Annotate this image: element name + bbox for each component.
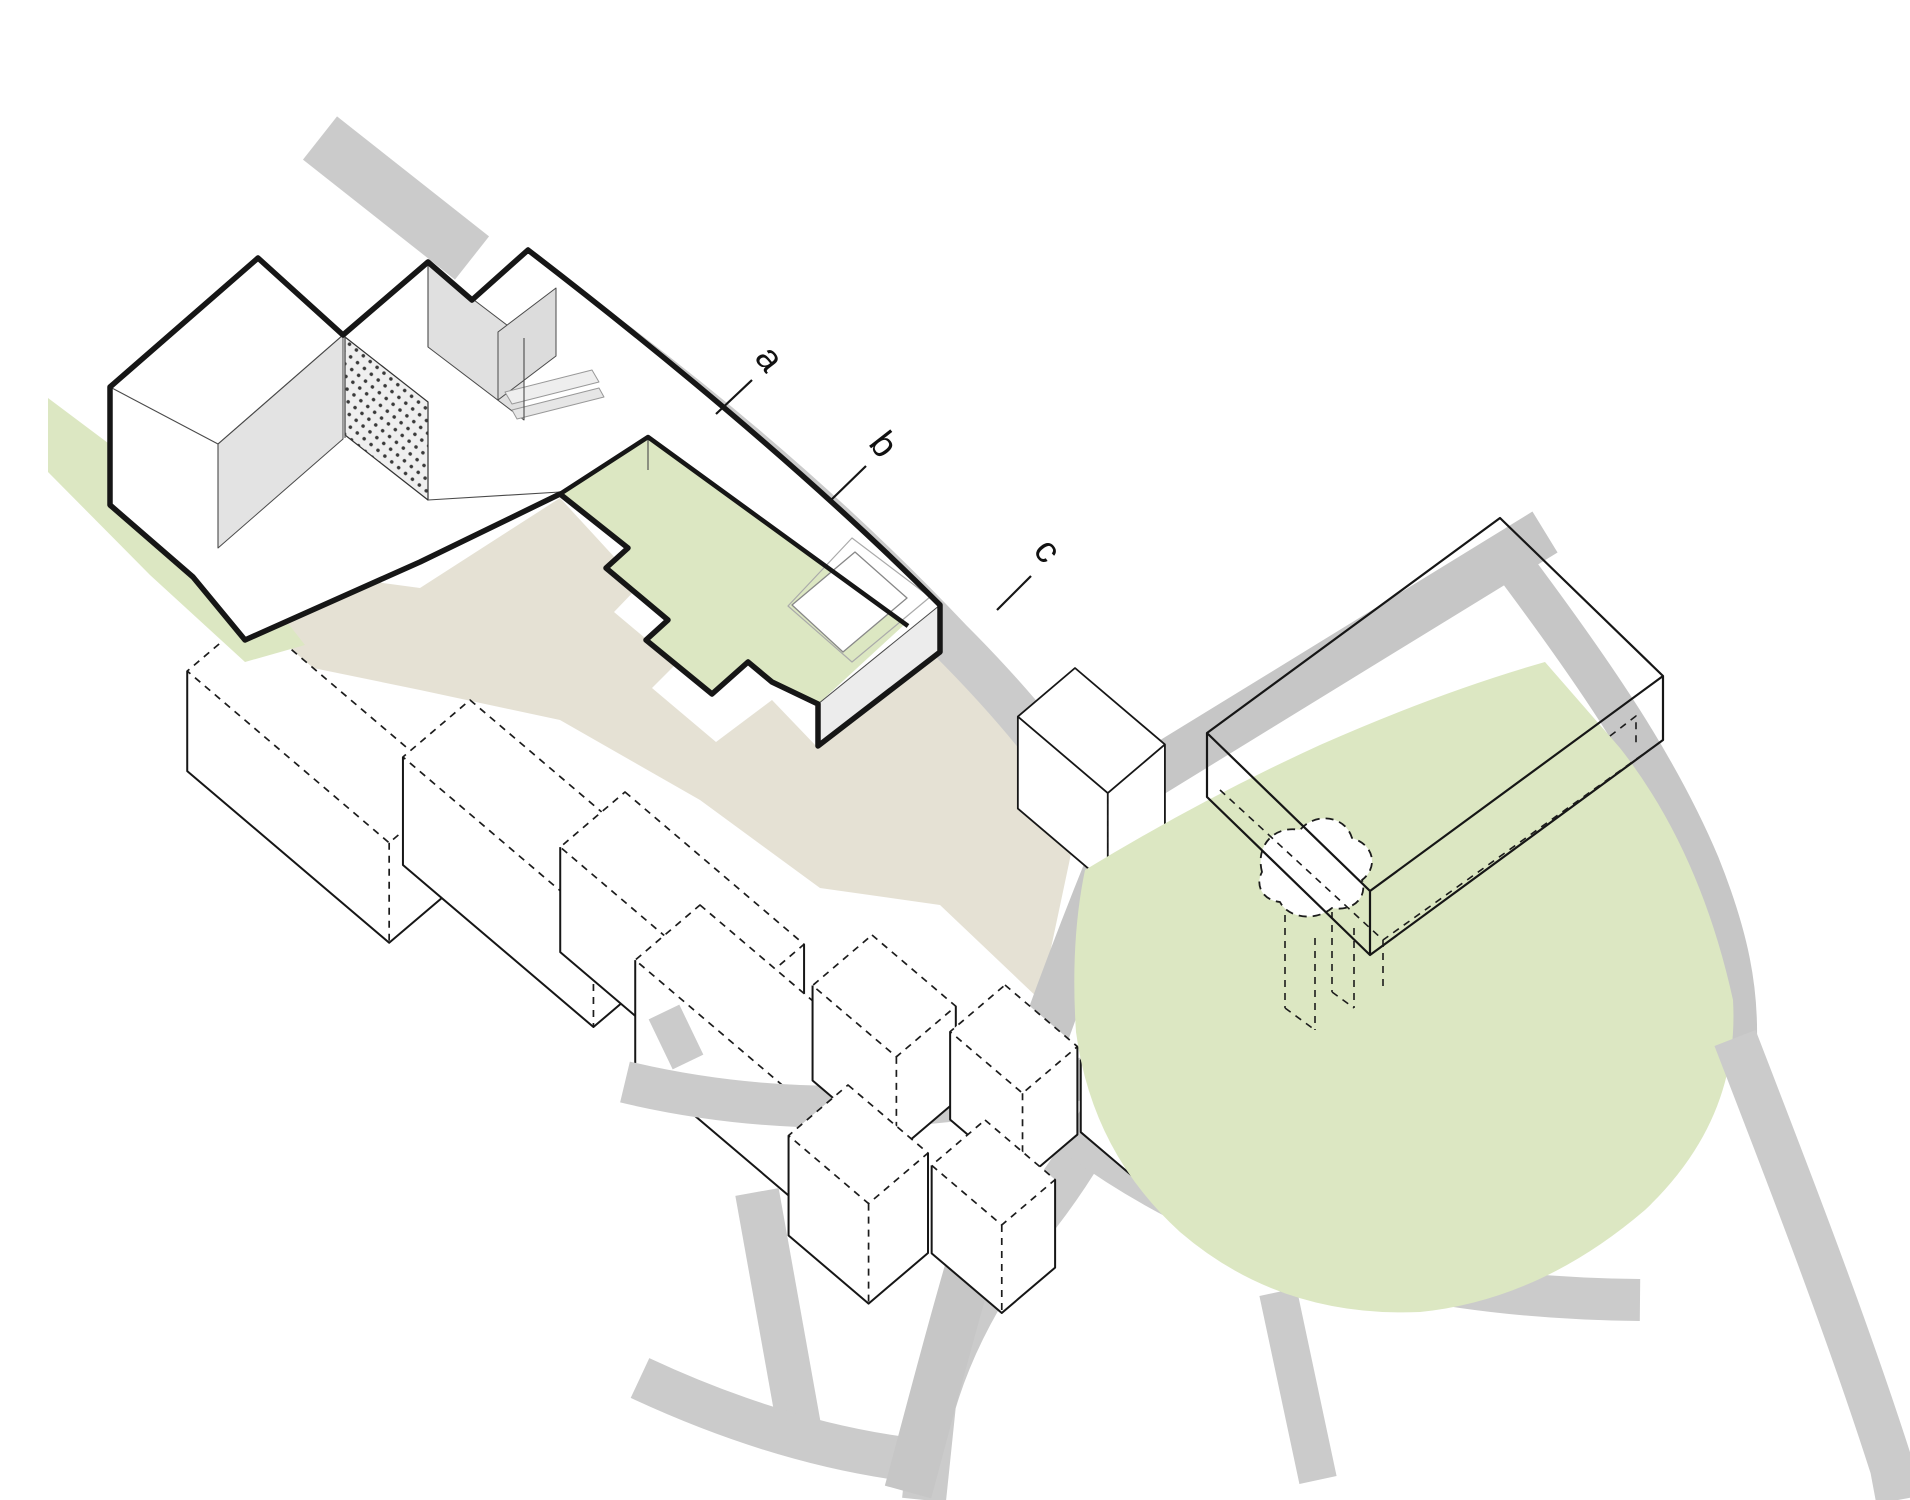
axonometric-site-diagram: abc (0, 0, 1910, 1500)
road-north (320, 138, 472, 258)
diagram-canvas: abc (0, 0, 1910, 1500)
diagram-shapes (48, 138, 1898, 1500)
label-a: a (747, 338, 792, 380)
label-b-leader (831, 466, 866, 500)
road-exit-corner (1735, 1038, 1898, 1500)
road-spur-bottom (1278, 1292, 1318, 1480)
label-c-leader (997, 576, 1031, 610)
label-c: c (1026, 530, 1070, 570)
road-stub-left (664, 1012, 688, 1062)
label-b: b (861, 424, 906, 465)
